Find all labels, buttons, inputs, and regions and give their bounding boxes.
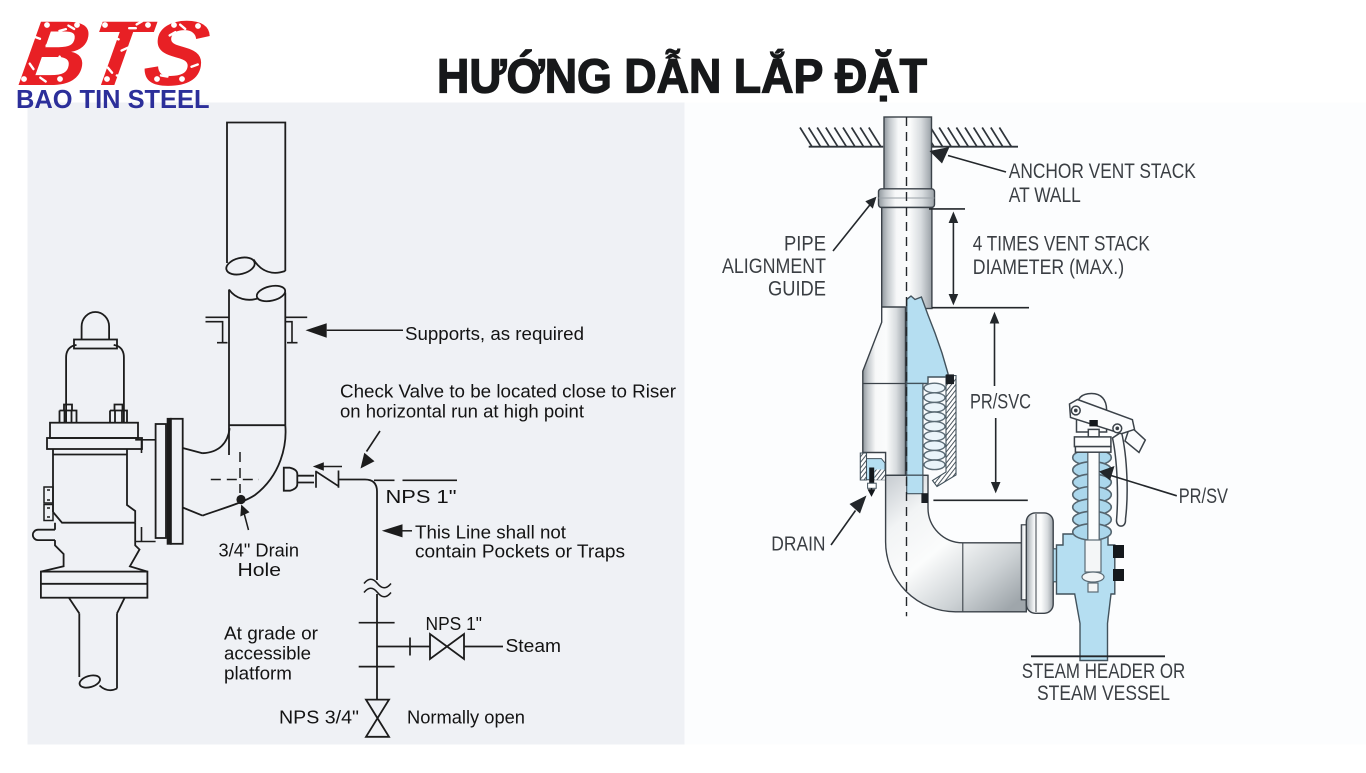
svg-text:Normally open: Normally open: [407, 708, 525, 728]
svg-text:Hole: Hole: [238, 560, 282, 580]
svg-text:3/4" Drain: 3/4" Drain: [219, 541, 300, 561]
svg-text:platform: platform: [224, 664, 292, 684]
svg-text:STEAM HEADER OR: STEAM HEADER OR: [1022, 659, 1186, 683]
svg-text:ANCHOR VENT STACK: ANCHOR VENT STACK: [1009, 159, 1197, 183]
svg-text:This Line shall not: This Line shall not: [415, 523, 566, 543]
svg-text:Steam: Steam: [506, 636, 562, 656]
svg-text:GUIDE: GUIDE: [768, 277, 826, 301]
svg-text:on horizontal run at high poin: on horizontal run at high point: [340, 402, 584, 422]
svg-text:DRAIN: DRAIN: [771, 534, 825, 556]
svg-text:Supports, as required: Supports, as required: [405, 324, 584, 344]
svg-text:STEAM VESSEL: STEAM VESSEL: [1037, 681, 1170, 705]
svg-text:Check Valve to be located clos: Check Valve to be located close to Riser: [340, 382, 676, 402]
svg-text:PR/SVC: PR/SVC: [970, 390, 1031, 414]
svg-text:PR/SV: PR/SV: [1179, 484, 1229, 508]
svg-text:At grade or: At grade or: [224, 624, 318, 644]
svg-text:AT WALL: AT WALL: [1009, 183, 1081, 207]
svg-text:HƯỚNG DẪN LẮP ĐẶT: HƯỚNG DẪN LẮP ĐẶT: [437, 49, 927, 104]
svg-text:4 TIMES VENT STACK: 4 TIMES VENT STACK: [973, 232, 1151, 256]
svg-text:NPS 1": NPS 1": [426, 614, 483, 634]
svg-text:ALIGNMENT: ALIGNMENT: [722, 254, 826, 278]
svg-text:BAO TIN STEEL: BAO TIN STEEL: [16, 86, 210, 114]
svg-text:accessible: accessible: [224, 644, 311, 664]
svg-text:contain Pockets or Traps: contain Pockets or Traps: [415, 542, 625, 562]
svg-text:NPS 1": NPS 1": [386, 487, 457, 507]
svg-text:DIAMETER (MAX.): DIAMETER (MAX.): [973, 255, 1124, 279]
svg-text:NPS 3/4": NPS 3/4": [279, 708, 359, 728]
svg-text:PIPE: PIPE: [784, 232, 826, 256]
